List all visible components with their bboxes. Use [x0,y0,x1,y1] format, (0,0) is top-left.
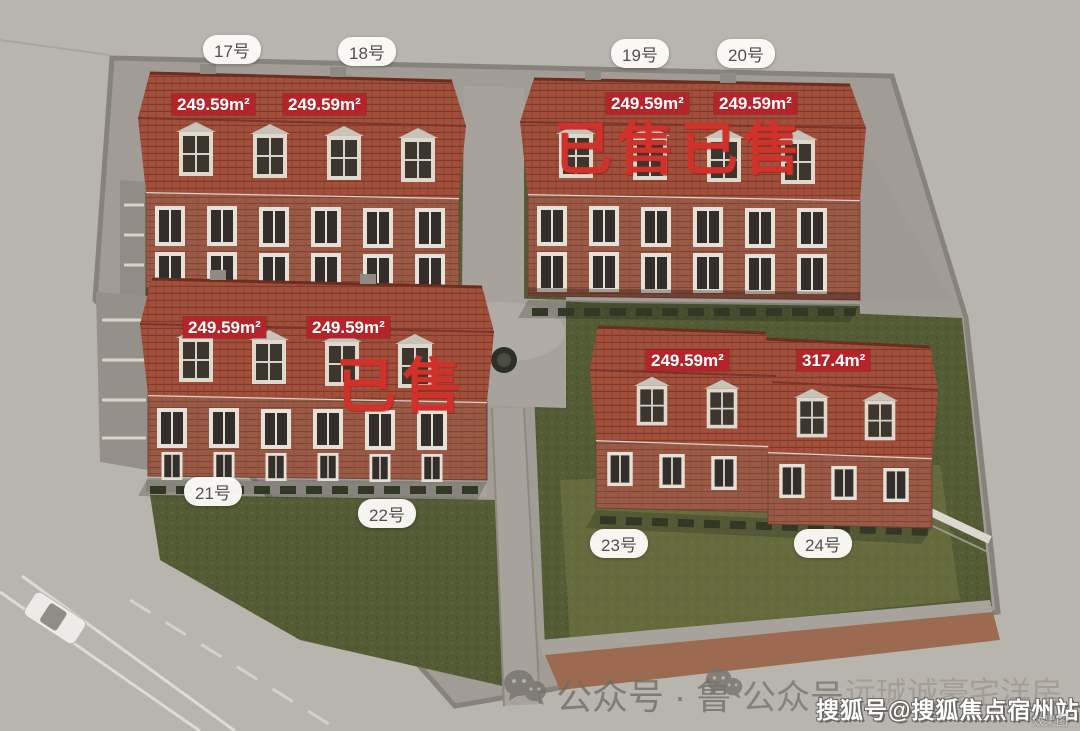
wechat-icon [502,668,548,713]
unit-pill-17: 17号 [203,35,261,64]
area-badge: 249.59m² [183,317,266,338]
area-badge: 249.59m² [646,350,729,371]
unit-pill-22: 22号 [358,499,416,528]
unit-pill-23: 23号 [590,529,648,558]
area-badge: 249.59m² [283,94,366,115]
unit-pill-24: 24号 [794,529,852,558]
unit-pill-18: 18号 [338,37,396,66]
area-badge: 249.59m² [307,317,390,338]
render-note: 效果图 [1032,712,1068,729]
area-badge: 317.4m² [797,350,870,371]
site-aerial-render [0,0,1080,731]
sold-overlay-top-right: 已售已售 [554,102,806,186]
unit-pill-19: 19号 [611,39,669,68]
aerial-site-image: 17号 18号 19号 20号 21号 22号 23号 24号 249.59m²… [0,0,1080,731]
unit-pill-21: 21号 [184,477,242,506]
wechat-icon [704,666,744,707]
sold-overlay-center-left: 已售 [336,338,468,425]
area-badge: 249.59m² [172,94,255,115]
unit-pill-20: 20号 [717,39,775,68]
